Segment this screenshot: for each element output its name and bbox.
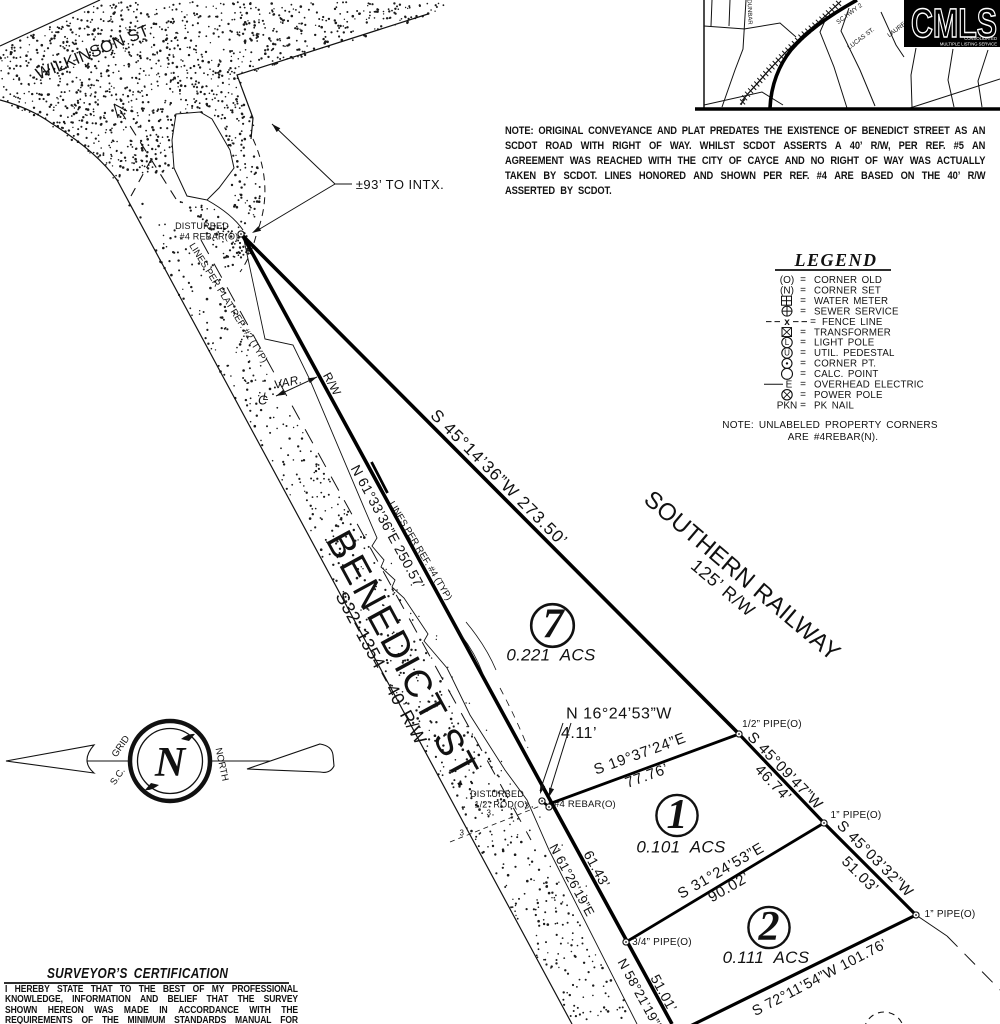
svg-text:U: U xyxy=(784,349,790,358)
svg-text:S 45°14’36”W 273.50’: S 45°14’36”W 273.50’ xyxy=(427,406,572,551)
svg-text:0.101 ACS: 0.101 ACS xyxy=(636,838,726,857)
svg-text:CORNER OLD: CORNER OLD xyxy=(814,275,882,286)
svg-text:POWER POLE: POWER POLE xyxy=(814,390,883,401)
svg-text:MULTIPLE LISTING SERVICE: MULTIPLE LISTING SERVICE xyxy=(940,42,997,47)
svg-text:N: N xyxy=(154,740,187,786)
svg-text:S.C.: S.C. xyxy=(108,766,128,787)
svg-text:LEGEND: LEGEND xyxy=(793,250,877,270)
svg-text:WATER METER: WATER METER xyxy=(814,296,888,307)
svg-text:LIGHT POLE: LIGHT POLE xyxy=(814,338,875,349)
svg-text:=: = xyxy=(800,285,806,296)
svg-text:(N): (N) xyxy=(780,285,794,296)
svg-text:2: 2 xyxy=(758,904,780,950)
svg-text:VAR.: VAR. xyxy=(273,372,304,392)
svg-text:=: = xyxy=(800,295,806,306)
svg-text:7: 7 xyxy=(543,602,566,648)
svg-text:CORNER PT.: CORNER PT. xyxy=(814,359,876,370)
svg-text:=: = xyxy=(800,389,806,400)
svg-text:3: 3 xyxy=(487,809,492,818)
svg-text:L: L xyxy=(785,338,790,347)
svg-text:1” PIPE(O): 1” PIPE(O) xyxy=(831,810,882,821)
svg-text:=: = xyxy=(800,348,806,359)
svg-text:SEWER SERVICE: SEWER SERVICE xyxy=(814,306,899,317)
svg-text:1” PIPE(O): 1” PIPE(O) xyxy=(925,909,976,920)
svg-text:CONSOLIDATED: CONSOLIDATED xyxy=(964,36,997,41)
svg-text:CALC. POINT: CALC. POINT xyxy=(814,369,879,380)
svg-text:1/2” ROD(O): 1/2” ROD(O) xyxy=(474,800,527,810)
svg-text:N 16°24’53”W: N 16°24’53”W xyxy=(566,706,672,723)
svg-text:NOTE: UNLABELED PROPERTY CORNE: NOTE: UNLABELED PROPERTY CORNERS xyxy=(722,420,938,431)
svg-text:=: = xyxy=(800,400,806,411)
svg-text:61.43’: 61.43’ xyxy=(580,848,613,891)
svg-text:±93’ TO INTX.: ±93’ TO INTX. xyxy=(356,177,445,192)
svg-text:PK NAIL: PK NAIL xyxy=(814,400,854,411)
svg-text:=: = xyxy=(800,327,806,338)
svg-text:L: L xyxy=(263,391,270,403)
svg-text:CORNER SET: CORNER SET xyxy=(814,285,881,296)
svg-text:=: = xyxy=(800,306,806,317)
svg-text:=: = xyxy=(800,337,806,348)
svg-text:3: 3 xyxy=(460,829,465,838)
svg-text:4.11’: 4.11’ xyxy=(561,725,597,742)
svg-text:OVERHEAD ELECTRIC: OVERHEAD ELECTRIC xyxy=(814,380,924,391)
svg-text:TRANSFORMER: TRANSFORMER xyxy=(814,327,891,338)
svg-text:DISTURBED: DISTURBED xyxy=(175,221,229,231)
svg-text:=: = xyxy=(810,316,816,327)
svg-text:LUCAS ST.: LUCAS ST. xyxy=(846,26,876,51)
svg-text:3/4” PIPE(O): 3/4” PIPE(O) xyxy=(632,937,692,948)
svg-text:FENCE LINE: FENCE LINE xyxy=(822,317,883,328)
svg-text:x: x xyxy=(784,317,790,328)
svg-text:1/2” PIPE(O): 1/2” PIPE(O) xyxy=(742,719,802,730)
svg-text:UTIL. PEDESTAL: UTIL. PEDESTAL xyxy=(814,348,895,359)
svg-text:#4 REBAR(O): #4 REBAR(O) xyxy=(180,232,239,242)
svg-text:SOUTHERN RAILWAY: SOUTHERN RAILWAY xyxy=(639,485,846,666)
svg-text:0.111 ACS: 0.111 ACS xyxy=(723,948,810,967)
svg-text:(O): (O) xyxy=(780,275,794,286)
svg-text:#4 REBAR(O): #4 REBAR(O) xyxy=(554,799,616,810)
svg-text:PKN: PKN xyxy=(777,400,798,411)
svg-text:=: = xyxy=(800,369,806,380)
svg-text:E: E xyxy=(786,380,793,391)
svg-text:=: = xyxy=(800,379,806,390)
svg-text:NORTH: NORTH xyxy=(213,747,231,782)
svg-text:DISTURBED: DISTURBED xyxy=(470,789,524,799)
svg-text:1: 1 xyxy=(667,792,688,838)
svg-text:0.221 ACS: 0.221 ACS xyxy=(506,646,596,665)
svg-text:DUNBAR: DUNBAR xyxy=(746,0,753,25)
svg-text:=: = xyxy=(800,358,806,369)
svg-text:=: = xyxy=(800,275,806,286)
svg-text:ARE #4REBAR(N).: ARE #4REBAR(N). xyxy=(788,432,879,443)
svg-text:3: 3 xyxy=(525,802,530,811)
